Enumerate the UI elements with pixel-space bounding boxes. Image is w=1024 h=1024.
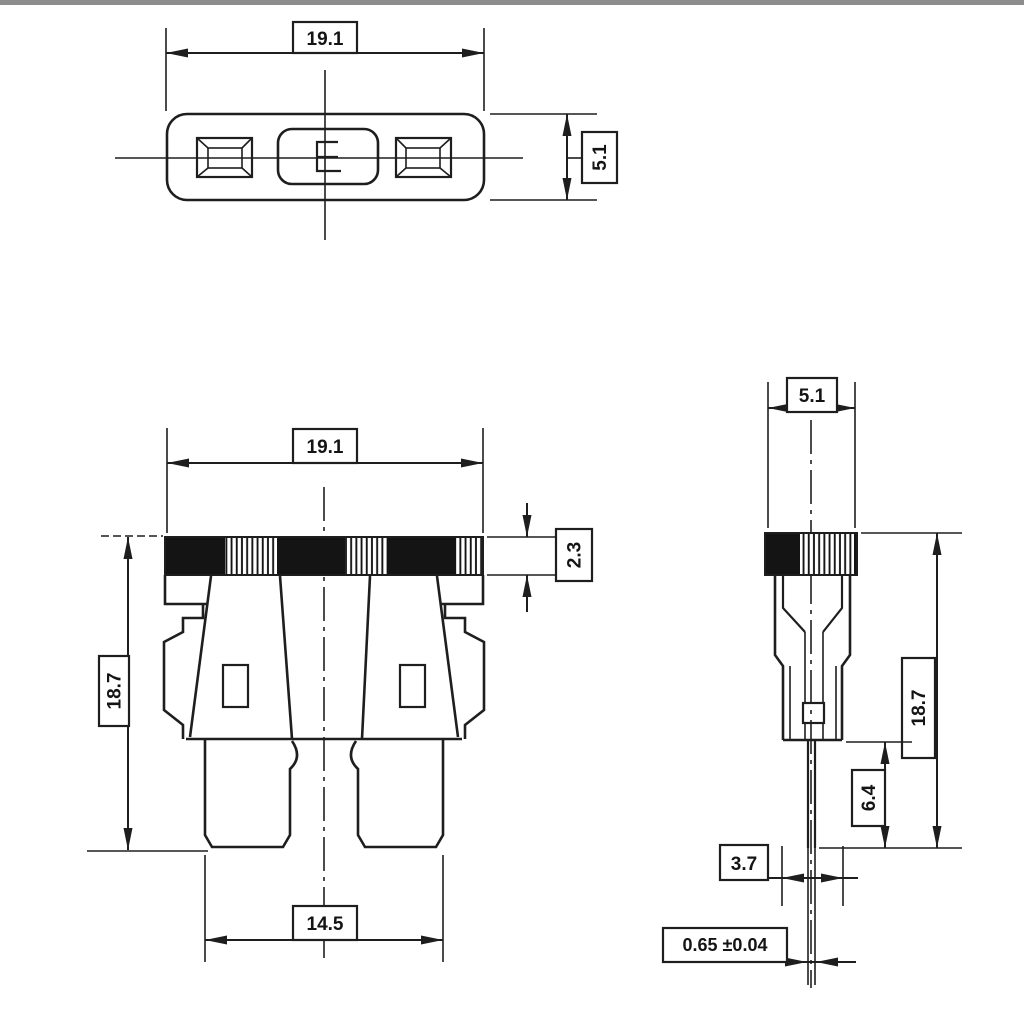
right-leg	[351, 739, 443, 847]
right-window	[400, 665, 425, 707]
band-fill	[165, 537, 483, 575]
top-view-fuse-element	[317, 142, 341, 171]
arrowhead-right	[785, 958, 807, 967]
arrowhead-right	[462, 49, 484, 58]
arrowhead-left	[782, 874, 804, 883]
arrowhead-up	[523, 575, 532, 597]
front-view: 19.1 2.3 18.7	[87, 428, 592, 962]
left-ear	[164, 604, 203, 739]
dim-label: 5.1	[590, 144, 611, 171]
inner-taper-right	[823, 575, 842, 632]
dim-label: 18.7	[105, 673, 126, 710]
center-column-left-edge	[280, 576, 292, 739]
element-crimp	[803, 703, 824, 723]
fuse-technical-drawing: 19.1 5.1 19.1	[0, 0, 1024, 1024]
dim-label: 19.1	[307, 437, 344, 458]
arrowhead-left	[167, 459, 189, 468]
arrowhead-left	[816, 958, 838, 967]
dim-label: 3.7	[731, 854, 757, 875]
side-view-housing	[775, 575, 850, 740]
dim-side-bottom-width: 3.7	[720, 845, 858, 906]
side-view-band	[765, 533, 857, 575]
left-window	[223, 665, 248, 707]
right-ear	[445, 604, 484, 739]
dim-label: 6.4	[859, 784, 880, 811]
arrowhead-down	[563, 178, 572, 200]
arrowhead-up	[563, 114, 572, 136]
dim-label: 19.1	[307, 29, 344, 50]
dim-label: 18.7	[909, 690, 930, 727]
arrowhead-up	[124, 537, 133, 559]
arrowhead-right	[821, 874, 843, 883]
right-face-edge	[437, 576, 458, 737]
band-hatch-section	[456, 537, 482, 575]
dim-label: 14.5	[307, 914, 344, 935]
dim-label: 2.3	[565, 542, 586, 568]
arrowhead-left	[166, 49, 188, 58]
band-hatch-section	[225, 537, 277, 575]
side-view: 5.1	[663, 378, 962, 988]
center-column-right-edge	[362, 576, 370, 739]
dim-front-width: 19.1	[167, 428, 483, 533]
right-shoulder	[441, 575, 483, 604]
arrowhead-down	[124, 828, 133, 850]
dim-top-height: 5.1	[490, 114, 617, 200]
dim-front-height: 18.7	[87, 536, 208, 851]
arrowhead-down	[933, 826, 942, 848]
inner-taper-left	[783, 575, 805, 632]
arrowhead-right	[461, 459, 483, 468]
arrowhead-right	[421, 936, 443, 945]
dim-front-band-height: 2.3	[487, 503, 592, 612]
arrowhead-up	[881, 742, 890, 764]
dim-side-blade-thickness: 0.65 ±0.04	[663, 928, 856, 967]
band-hatch-section	[345, 537, 388, 575]
dim-label: 5.1	[799, 386, 826, 407]
left-face-edge	[190, 576, 211, 737]
arrowhead-down	[523, 515, 532, 537]
left-leg	[205, 739, 297, 847]
arrowhead-down	[881, 826, 890, 848]
arrowhead-left	[205, 936, 227, 945]
top-view: 19.1 5.1	[115, 22, 617, 240]
left-shoulder	[165, 575, 207, 604]
dim-label: 0.65 ±0.04	[683, 935, 768, 955]
front-view-band	[165, 537, 483, 575]
right-outer-edge	[842, 575, 850, 740]
arrowhead-up	[933, 533, 942, 555]
scan-border-top	[0, 0, 1024, 5]
left-outer-edge	[775, 575, 783, 740]
fuse-technical-drawing-page: 19.1 5.1 19.1	[0, 0, 1024, 1024]
dim-side-height: 18.7	[819, 533, 962, 848]
band-hatch-section	[800, 533, 854, 575]
